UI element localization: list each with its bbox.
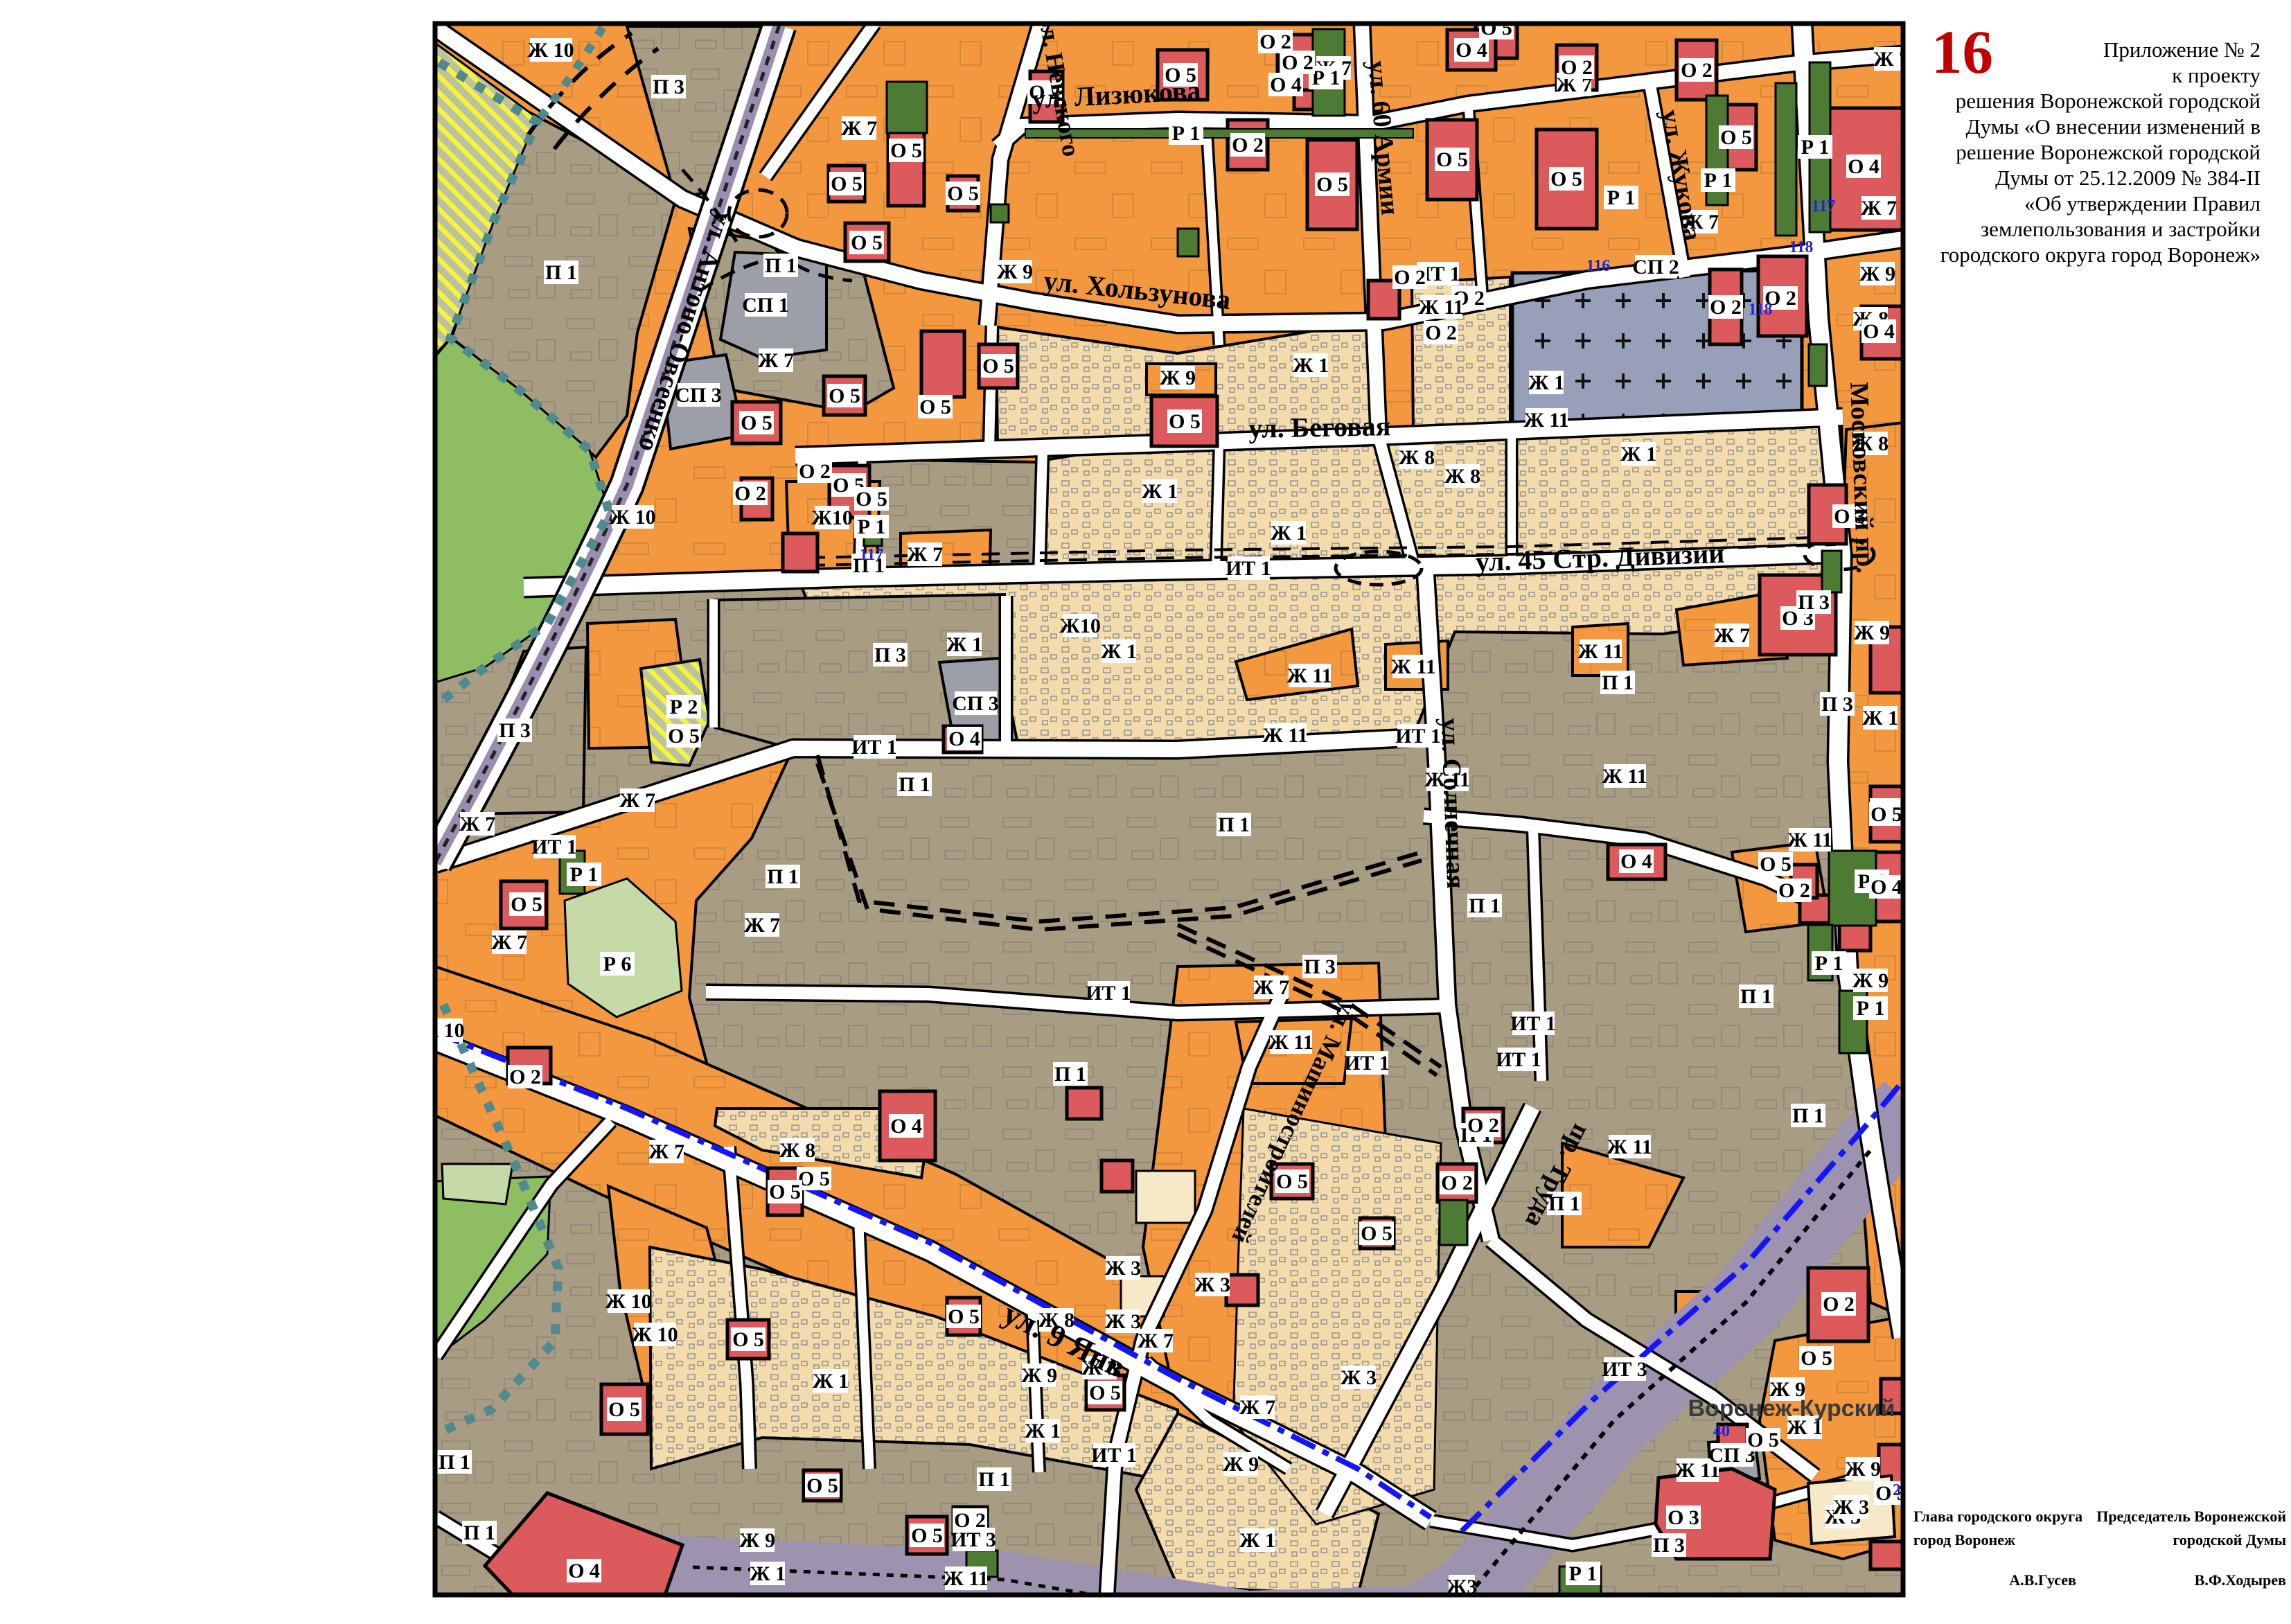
svg-text:Ж10: Ж10: [811, 506, 853, 529]
svg-text:О 5: О 5: [919, 396, 951, 418]
svg-text:Думы от 25.12.2009 № 384-II: Думы от 25.12.2009 № 384-II: [1995, 166, 2261, 190]
svg-text:Ж 11: Ж 11: [1523, 409, 1569, 432]
svg-text:Ж 7: Ж 7: [648, 1140, 684, 1163]
svg-text:Ж 11: Ж 11: [1602, 765, 1647, 788]
svg-text:Р 6: Р 6: [603, 953, 632, 976]
svg-text:П 3: П 3: [1653, 1534, 1685, 1557]
svg-text:О 5: О 5: [982, 355, 1014, 378]
svg-text:Ж 1: Ж 1: [750, 1562, 786, 1585]
svg-text:О 2: О 2: [1425, 321, 1457, 344]
svg-text:О 5: О 5: [829, 385, 860, 407]
svg-text:Ж 3: Ж 3: [1105, 1257, 1141, 1280]
svg-text:Р 1: Р 1: [1312, 67, 1341, 89]
svg-text:Ж 11: Ж 11: [1607, 1136, 1652, 1158]
svg-text:О 5: О 5: [1747, 1429, 1779, 1451]
svg-text:П 1: П 1: [1218, 813, 1250, 836]
svg-text:О 5: О 5: [668, 725, 700, 748]
svg-text:Ж 3: Ж 3: [1194, 1273, 1230, 1296]
svg-text:П 3: П 3: [499, 719, 531, 742]
svg-text:ул. Солнечная: ул. Солнечная: [1435, 718, 1471, 890]
svg-text:ИТ 3: ИТ 3: [1602, 1358, 1647, 1381]
svg-text:Ж 7: Ж 7: [1138, 1330, 1174, 1352]
svg-text:П 3: П 3: [1304, 955, 1336, 978]
svg-text:П 1: П 1: [767, 865, 799, 888]
svg-text:П 3: П 3: [653, 76, 684, 98]
svg-text:СП 2: СП 2: [1632, 256, 1679, 279]
svg-text:О 5: О 5: [831, 173, 863, 195]
svg-text:Ж 1: Ж 1: [1862, 707, 1898, 730]
svg-text:Ж 10: Ж 10: [609, 506, 655, 529]
svg-text:О 4: О 4: [1870, 876, 1902, 899]
svg-text:40: 40: [1713, 1422, 1730, 1440]
svg-text:Ж 3: Ж 3: [1833, 1496, 1869, 1519]
svg-text:В.Ф.Ходырев: В.Ф.Ходырев: [2195, 1571, 2286, 1589]
svg-text:«Об утверждении Правил: «Об утверждении Правил: [2024, 191, 2261, 215]
svg-text:Ж 11: Ж 11: [1262, 724, 1308, 747]
svg-text:О 5: О 5: [741, 412, 772, 434]
svg-text:Ж 10: Ж 10: [418, 1019, 464, 1042]
svg-text:О 5: О 5: [1720, 126, 1752, 149]
svg-text:ИТ 1: ИТ 1: [1395, 725, 1441, 748]
svg-text:О 4: О 4: [1848, 155, 1879, 178]
svg-text:Ж 1: Ж 1: [1101, 640, 1137, 663]
svg-text:Ж 3: Ж 3: [1341, 1366, 1377, 1389]
svg-text:О 4: О 4: [1863, 320, 1895, 343]
svg-text:Ж 1: Ж 1: [1293, 354, 1329, 377]
svg-text:город Воронеж: город Воронеж: [1913, 1531, 2015, 1548]
svg-text:О 5: О 5: [1436, 148, 1468, 171]
svg-text:О 5: О 5: [1089, 1382, 1121, 1404]
svg-text:Ж 9: Ж 9: [1223, 1453, 1259, 1476]
svg-text:О 4: О 4: [568, 1560, 600, 1582]
svg-text:Ж 9: Ж 9: [1859, 263, 1895, 285]
svg-text:О 4: О 4: [1456, 39, 1487, 62]
svg-text:О 5: О 5: [1361, 1222, 1392, 1245]
svg-text:Р 1: Р 1: [1569, 1562, 1598, 1585]
svg-text:О 2: О 2: [1823, 1293, 1855, 1316]
svg-text:Ж 9: Ж 9: [739, 1529, 775, 1552]
svg-text:Ж 7: Ж 7: [744, 914, 780, 937]
svg-text:О 5: О 5: [1870, 803, 1902, 826]
svg-text:О 5: О 5: [851, 231, 883, 254]
svg-text:Ж 11: Ж 11: [1577, 640, 1623, 663]
svg-text:Ж10: Ж10: [1059, 615, 1101, 637]
svg-text:О 5: О 5: [806, 1474, 838, 1497]
svg-text:О 2: О 2: [1259, 30, 1291, 53]
svg-text:Ж 7: Ж 7: [1714, 624, 1750, 647]
svg-text:О 2: О 2: [1561, 56, 1593, 79]
svg-text:городского округа город Вороне: городского округа город Воронеж»: [1940, 242, 2261, 267]
svg-text:О 5: О 5: [890, 139, 922, 162]
svg-text:решение Воронежской городской: решение Воронежской городской: [1956, 140, 2261, 164]
svg-text:Ж 1: Ж 1: [1025, 1420, 1061, 1442]
svg-text:П 1: П 1: [545, 261, 577, 284]
svg-text:П 1: П 1: [1792, 1104, 1824, 1127]
svg-text:Р 1: Р 1: [1857, 997, 1885, 1020]
svg-text:О 2: О 2: [1232, 134, 1264, 157]
svg-text:П 3: П 3: [1821, 693, 1853, 716]
svg-text:Ж 8: Ж 8: [1399, 446, 1435, 469]
svg-text:Думы «О внесении изменений в: Думы «О внесении изменений в: [1965, 114, 2261, 139]
svg-text:ИТ 1: ИТ 1: [1344, 1052, 1390, 1075]
svg-text:П 3: П 3: [874, 644, 906, 667]
svg-text:О 5: О 5: [769, 1181, 801, 1203]
svg-text:Ж 9: Ж 9: [997, 261, 1033, 283]
svg-text:П 1: П 1: [899, 773, 930, 796]
svg-text:Ж 1: Ж 1: [946, 633, 982, 656]
svg-text:П 1: П 1: [1054, 1063, 1086, 1086]
svg-text:О 5: О 5: [948, 1305, 980, 1328]
svg-text:О 5: О 5: [511, 893, 542, 916]
svg-text:Ж 7: Ж 7: [491, 931, 527, 954]
svg-text:Р 2: Р 2: [670, 696, 698, 718]
svg-text:О 3: О 3: [1668, 1506, 1699, 1529]
svg-text:ИТ 1: ИТ 1: [1496, 1048, 1541, 1071]
svg-text:П 1: П 1: [439, 1451, 470, 1474]
svg-text:Приложение № 2: Приложение № 2: [2103, 37, 2261, 62]
svg-text:Ж 10: Ж 10: [605, 1290, 651, 1313]
svg-text:118: 118: [1789, 238, 1814, 256]
svg-text:к проекту: к проекту: [2172, 63, 2261, 87]
svg-text:Р 1: Р 1: [1172, 122, 1201, 145]
svg-text:О 2: О 2: [1467, 1114, 1499, 1137]
svg-text:О 2: О 2: [1710, 296, 1742, 319]
svg-text:ИТ 1: ИТ 1: [531, 836, 577, 858]
svg-text:Ж 11: Ж 11: [943, 1567, 989, 1590]
svg-text:Р 1: Р 1: [1704, 169, 1733, 192]
svg-text:О 2: О 2: [1394, 266, 1426, 289]
svg-text:ИТ 1: ИТ 1: [1091, 1444, 1137, 1467]
svg-text:Р 1: Р 1: [1607, 186, 1636, 209]
svg-text:Ж 7: Ж 7: [1239, 1396, 1275, 1419]
svg-text:Ж 8: Ж 8: [1444, 465, 1480, 488]
svg-text:Ж 9: Ж 9: [1845, 1458, 1881, 1481]
svg-text:118: 118: [1749, 301, 1773, 319]
svg-text:Р 1: Р 1: [858, 515, 886, 538]
svg-text:Ж 7: Ж 7: [907, 543, 943, 566]
svg-text:Ж 11: Ж 11: [1390, 655, 1436, 678]
svg-text:Ж 10: Ж 10: [631, 1323, 678, 1346]
svg-text:116: 116: [1586, 257, 1611, 275]
svg-text:О 2: О 2: [954, 1509, 986, 1532]
svg-text:Ж 7: Ж 7: [459, 813, 495, 836]
svg-text:Ж 11: Ж 11: [1787, 829, 1832, 851]
svg-text:решения Воронежской городской: решения Воронежской городской: [1956, 89, 2261, 113]
svg-text:Р 1: Р 1: [1801, 136, 1830, 159]
svg-text:Председатель Воронежской: Председатель Воронежской: [2096, 1508, 2286, 1525]
svg-text:Ж 9: Ж 9: [1854, 621, 1890, 644]
svg-text:О 2: О 2: [1441, 1172, 1473, 1194]
svg-text:Ж 10: Ж 10: [527, 39, 574, 62]
svg-text:Ж 7: Ж 7: [1861, 197, 1897, 220]
svg-text:О 5: О 5: [1169, 410, 1201, 433]
svg-text:О 5: О 5: [732, 1328, 764, 1351]
svg-text:Ж 1: Ж 1: [1271, 522, 1307, 545]
svg-text:Ж 1: Ж 1: [813, 1370, 849, 1393]
svg-text:П 1: П 1: [1469, 894, 1501, 917]
svg-text:Ж 1: Ж 1: [1528, 371, 1564, 394]
svg-text:О 2: О 2: [1681, 59, 1713, 82]
svg-text:Р 1: Р 1: [570, 863, 599, 886]
svg-text:Ж 1: Ж 1: [1142, 480, 1178, 503]
svg-text:16: 16: [1931, 19, 1993, 87]
svg-text:П 1: П 1: [1602, 671, 1634, 694]
svg-text:ИТ 1: ИТ 1: [1086, 982, 1131, 1005]
svg-text:Ж 1: Ж 1: [1620, 443, 1656, 466]
svg-text:О 5: О 5: [1550, 168, 1582, 191]
svg-text:Ж 9: Ж 9: [1852, 969, 1888, 992]
svg-text:О 4: О 4: [948, 727, 980, 750]
svg-text:Ж 3: Ж 3: [1105, 1310, 1141, 1333]
svg-text:Ж 7: Ж 7: [841, 117, 877, 140]
svg-text:Глава городского округа: Глава городского округа: [1913, 1508, 2082, 1525]
svg-text:О 5: О 5: [1480, 17, 1512, 39]
svg-text:О 4: О 4: [1270, 73, 1302, 96]
svg-text:П 1: П 1: [1740, 985, 1772, 1008]
svg-text:О 4: О 4: [1620, 850, 1652, 873]
svg-text:Ж 9: Ж 9: [1021, 1364, 1057, 1387]
svg-text:О 2: О 2: [1282, 51, 1313, 74]
svg-text:117: 117: [1812, 197, 1836, 215]
svg-text:Ж 9: Ж 9: [1160, 367, 1196, 389]
svg-text:П 1: П 1: [463, 1521, 495, 1544]
svg-text:П 1: П 1: [765, 254, 797, 277]
svg-text:П 3: П 3: [1798, 591, 1830, 614]
svg-text:Ж 8: Ж 8: [779, 1139, 815, 1162]
svg-text:Ж 11: Ж 11: [1286, 664, 1332, 687]
svg-text:О 5: О 5: [1801, 1347, 1832, 1370]
svg-text:ИТ 1: ИТ 1: [1226, 557, 1271, 580]
svg-text:Ж 1: Ж 1: [1239, 1529, 1275, 1552]
svg-text:О 5: О 5: [911, 1524, 943, 1547]
svg-text:А.В.Гусев: А.В.Гусев: [2009, 1571, 2076, 1589]
svg-text:117: 117: [860, 546, 884, 564]
svg-text:Воронеж-Курский: Воронеж-Курский: [1688, 1395, 1895, 1422]
svg-text:Ж 7: Ж 7: [758, 349, 794, 372]
svg-text:Ж 11: Ж 11: [1268, 1031, 1313, 1054]
svg-text:Ж 7: Ж 7: [1253, 976, 1289, 999]
svg-text:О 5: О 5: [798, 1167, 830, 1190]
svg-text:Ж 11: Ж 11: [1418, 296, 1464, 319]
svg-text:ул. Беговая: ул. Беговая: [1248, 410, 1391, 444]
svg-text:О 2: О 2: [799, 460, 831, 483]
svg-text:О 5: О 5: [608, 1398, 640, 1421]
svg-text:О 5: О 5: [856, 488, 887, 511]
svg-text:О 5: О 5: [1316, 173, 1348, 196]
svg-text:городской Думы: городской Думы: [2173, 1531, 2286, 1548]
svg-text:О 5: О 5: [947, 182, 979, 205]
svg-text:Р 1: Р 1: [1815, 952, 1843, 975]
svg-text:СП 3: СП 3: [952, 692, 999, 715]
svg-text:О 2: О 2: [1778, 879, 1810, 902]
svg-text:П 1: П 1: [978, 1468, 1010, 1491]
svg-text:О 5: О 5: [1760, 853, 1792, 876]
svg-text:О 4: О 4: [890, 1115, 922, 1138]
svg-text:ИТ 1: ИТ 1: [851, 736, 897, 759]
svg-text:СП 1: СП 1: [742, 294, 789, 317]
svg-text:землепользования и застройки: землепользования и застройки: [1981, 217, 2261, 241]
svg-text:О 2: О 2: [734, 482, 766, 505]
svg-text:ИТ 1: ИТ 1: [1510, 1012, 1556, 1035]
svg-text:Ж 7: Ж 7: [619, 789, 655, 812]
svg-text:О 2: О 2: [509, 1066, 541, 1088]
